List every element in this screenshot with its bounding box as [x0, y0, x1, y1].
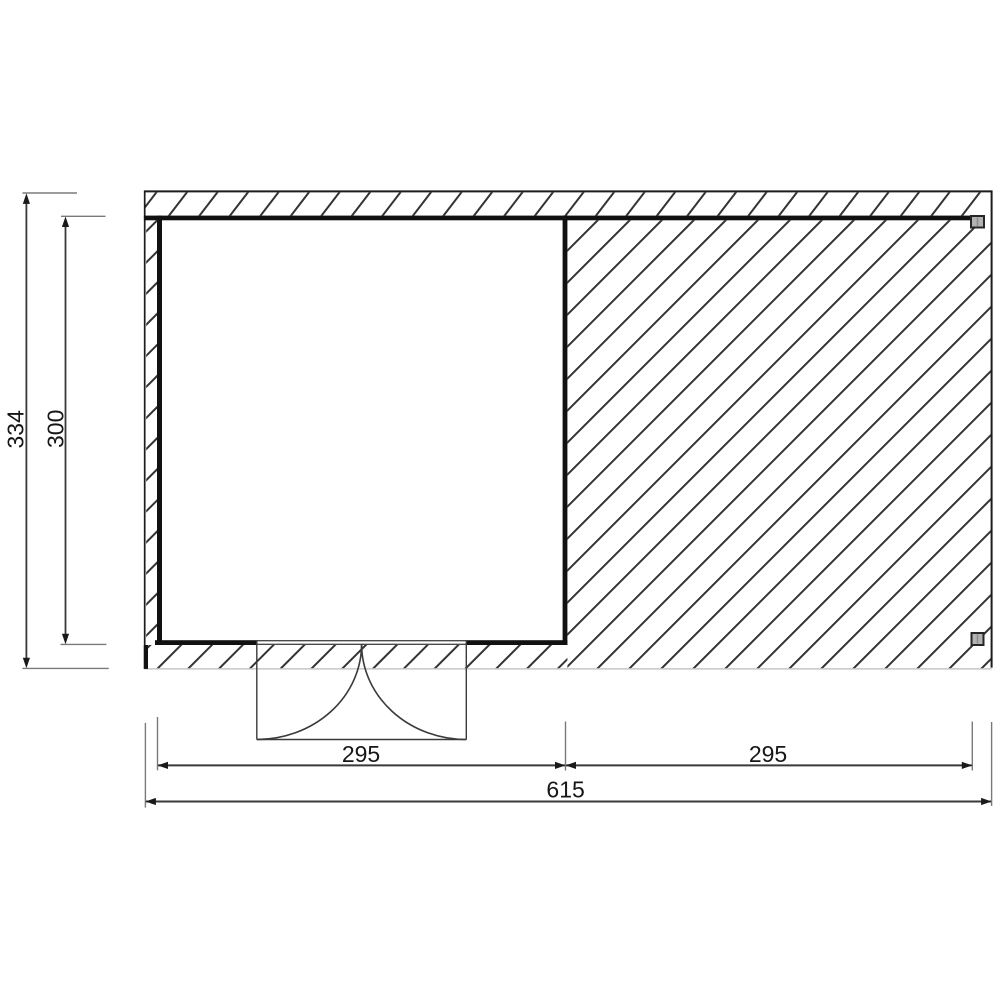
svg-text:300: 300 — [42, 410, 68, 448]
svg-text:295: 295 — [749, 741, 787, 767]
svg-text:615: 615 — [546, 776, 584, 802]
svg-text:295: 295 — [342, 741, 380, 767]
svg-text:334: 334 — [3, 410, 29, 449]
